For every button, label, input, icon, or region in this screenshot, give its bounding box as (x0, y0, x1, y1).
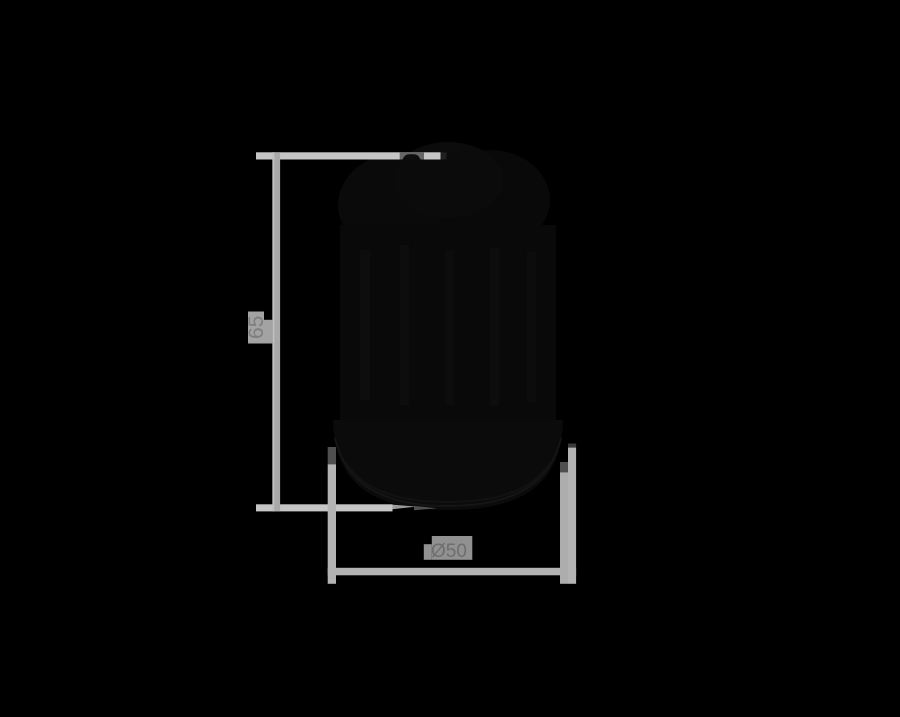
svg-text:Ø50: Ø50 (431, 541, 467, 562)
svg-text:65: 65 (245, 316, 268, 339)
